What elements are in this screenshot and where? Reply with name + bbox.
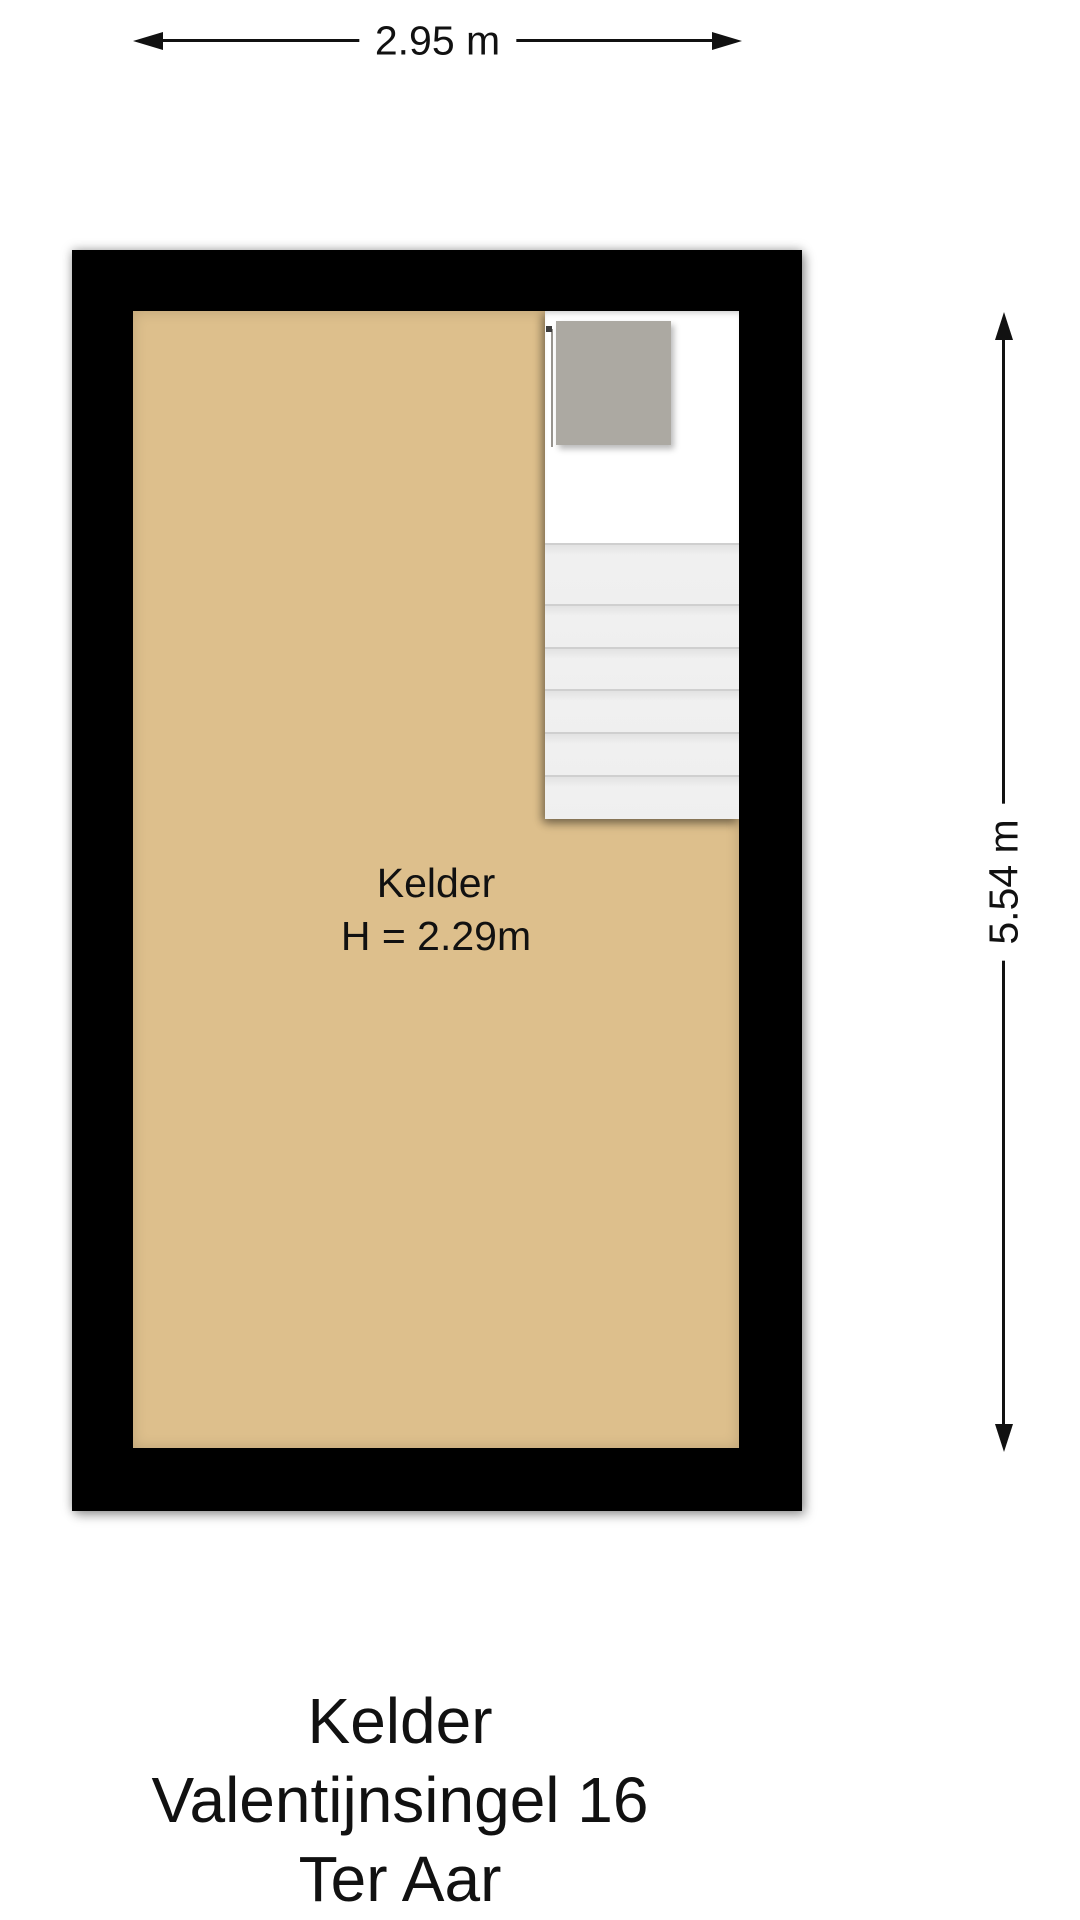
arrow-up-icon — [995, 312, 1013, 340]
stair-rail-line — [551, 329, 553, 447]
plan-title-address: Valentijnsingel 16 — [152, 1761, 649, 1840]
height-dimension-label: 5.54 m — [981, 803, 1028, 960]
arrow-left-icon — [133, 32, 163, 50]
height-dimension: 5.54 m — [988, 312, 1020, 1452]
plan-title-city: Ter Aar — [152, 1840, 649, 1919]
stair-tread — [545, 647, 739, 689]
basement-floor: Kelder H = 2.29m — [133, 311, 739, 1448]
width-dimension: 2.95 m — [133, 26, 742, 56]
stair-tread — [545, 604, 739, 647]
basement-plan-walls: Kelder H = 2.29m — [72, 250, 802, 1511]
width-dimension-label: 2.95 m — [359, 18, 516, 65]
floorplan-canvas: 2.95 m Kelder H = 2.29m 5.54 m Kelder Va… — [0, 0, 1080, 1920]
stair-rail-post — [546, 326, 552, 332]
stair-landing — [556, 321, 671, 445]
plan-title: Kelder Valentijnsingel 16 Ter Aar — [152, 1682, 649, 1919]
plan-title-room: Kelder — [152, 1682, 649, 1761]
stair-tread — [545, 775, 739, 819]
stair-treads — [545, 543, 739, 819]
room-name: Kelder — [133, 857, 739, 910]
stair-tread — [545, 543, 739, 604]
room-label: Kelder H = 2.29m — [133, 857, 739, 963]
room-ceiling-height: H = 2.29m — [133, 910, 739, 963]
stair-tread — [545, 732, 739, 775]
arrow-right-icon — [712, 32, 742, 50]
stair-tread — [545, 689, 739, 732]
stairwell — [545, 311, 739, 819]
arrow-down-icon — [995, 1424, 1013, 1452]
